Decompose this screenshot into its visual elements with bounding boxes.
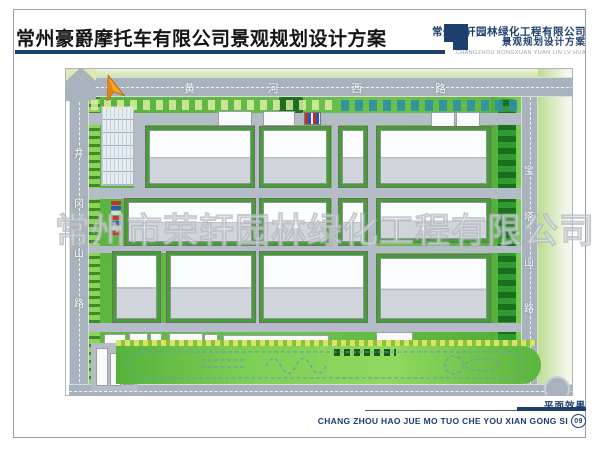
road-label-char: 路 <box>524 300 534 315</box>
page-title: 常州豪爵摩托车有限公司景观规划设计方案 <box>16 24 456 51</box>
building-hedge-pad <box>376 254 491 323</box>
factory-building <box>263 255 364 319</box>
gatehouse-building <box>218 111 252 126</box>
north-arrow-compass-icon <box>99 73 125 101</box>
shrub-row-top <box>91 100 336 110</box>
factory-building <box>170 255 252 319</box>
roadside-verge-right <box>538 69 573 396</box>
road-label-char: 黄 <box>184 80 195 94</box>
flag-kiosk <box>304 112 321 125</box>
road-label-huanghe-west: 黄河西路 <box>184 80 446 94</box>
factory-building <box>263 202 327 242</box>
car <box>111 211 121 215</box>
factory-building <box>380 202 487 239</box>
track-loop-circle <box>445 356 463 374</box>
road-intersection-northwest <box>66 69 96 101</box>
road-label-char: 河 <box>268 80 279 94</box>
intersection-green-quadrant <box>83 69 96 81</box>
footer-company-pinyin: CHANG ZHOU HAO JUE MO TUO CHE YOU XIAN G… <box>318 414 586 428</box>
internal-road-h4 <box>89 323 521 332</box>
company-subtitle: 景观规划设计方案 <box>432 38 586 49</box>
building-hedge-pad <box>166 251 256 323</box>
road-label-char: 路 <box>435 80 446 94</box>
track-slalom <box>266 359 326 374</box>
design-board-page: { "header": { "title": "常州豪爵摩托车有限公司景观规划设… <box>0 0 600 463</box>
company-title-block: 常州荣轩园林绿化工程有限公司 景观规划设计方案 CHANGZHOU RONGXU… <box>432 26 586 56</box>
car <box>111 206 121 210</box>
car <box>111 226 121 230</box>
car <box>111 231 121 235</box>
road-label-char: 井 <box>74 145 84 160</box>
road-roundabout-southeast <box>544 376 570 396</box>
building-hedge-pad <box>376 126 491 188</box>
road-label-char: 塔 <box>524 208 534 223</box>
car <box>111 216 121 220</box>
building-hedge-pad <box>124 198 256 246</box>
road-label-char: 山 <box>74 245 84 260</box>
factory-building <box>342 130 364 184</box>
factory-building <box>263 130 327 184</box>
gatehouse-building <box>263 111 295 126</box>
building-hedge-pad <box>259 198 331 246</box>
track-inner-oval <box>465 359 499 371</box>
building-hedge-pad <box>259 126 331 188</box>
road-label-jinggangshan: 井冈山路 <box>73 145 85 310</box>
factory-building <box>128 202 252 242</box>
building-hedge-pad <box>338 126 368 188</box>
road-center-line <box>69 391 573 392</box>
title-underline-bar <box>15 50 445 54</box>
road-bottom <box>69 384 573 396</box>
intersection-green-quadrant <box>66 69 79 81</box>
footer-pinyin-text: CHANG ZHOU HAO JUE MO TUO CHE YOU XIAN G… <box>318 416 568 426</box>
roadside-verge-top <box>66 69 573 77</box>
gatehouse-building <box>431 112 455 127</box>
parking-lot <box>101 106 134 186</box>
factory-building <box>149 130 251 184</box>
road-label-char: 山 <box>524 254 534 269</box>
car <box>111 201 121 205</box>
building-hedge-pad <box>259 251 368 323</box>
building-hedge-pad <box>145 126 255 188</box>
footer-rule-thick <box>517 407 586 411</box>
building-hedge-pad <box>112 251 161 323</box>
gatehouse-building <box>456 112 480 127</box>
motorcycle-test-track <box>116 346 541 384</box>
internal-road-v4 <box>368 113 376 332</box>
company-pinyin: CHANGZHOU RONGXUAN YUAN LIN LV HUA <box>432 50 586 56</box>
road-label-char: 宝 <box>524 162 534 177</box>
utility-building <box>96 348 108 386</box>
parking-stall-row <box>341 100 521 111</box>
factory-building <box>116 255 157 319</box>
building-hedge-pad <box>338 198 368 246</box>
factory-building <box>342 202 364 242</box>
factory-building <box>380 130 487 184</box>
page-number-badge: 09 <box>571 414 586 428</box>
road-label-char: 路 <box>74 295 84 310</box>
hedge-strip-left <box>89 97 100 384</box>
car <box>111 221 121 225</box>
track-straights <box>201 360 246 367</box>
building-hedge-pad <box>376 198 491 243</box>
road-label-char: 西 <box>351 80 362 94</box>
factory-building <box>380 258 487 319</box>
parked-cars-row <box>111 201 123 239</box>
road-label-baotashan: 宝塔山路 <box>523 162 535 315</box>
track-outer-loop <box>128 352 524 378</box>
road-label-char: 冈 <box>74 195 84 210</box>
site-plan-drawing: 黄河西路 井冈山路 宝塔山路 <box>65 68 573 396</box>
